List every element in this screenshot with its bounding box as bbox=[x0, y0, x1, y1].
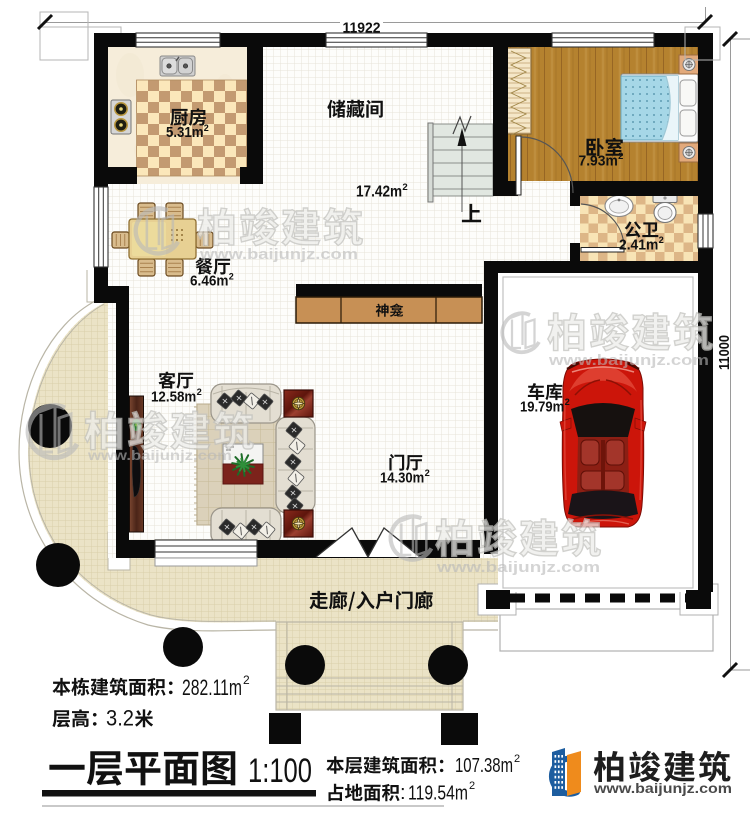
svg-text:11922: 11922 bbox=[343, 20, 381, 37]
svg-text:2: 2 bbox=[402, 182, 407, 193]
svg-text:6.46m: 6.46m bbox=[190, 274, 229, 290]
svg-text:www.baijunjz.com: www.baijunjz.com bbox=[436, 560, 600, 576]
svg-text:282.11m: 282.11m bbox=[182, 675, 242, 700]
svg-text:11000: 11000 bbox=[716, 335, 733, 370]
svg-text:12.58m: 12.58m bbox=[151, 389, 196, 406]
svg-text:14.30m: 14.30m bbox=[380, 470, 424, 487]
svg-text:107.38m: 107.38m bbox=[455, 755, 513, 777]
svg-text:17.42m: 17.42m bbox=[356, 184, 402, 201]
svg-text:2: 2 bbox=[659, 235, 664, 245]
svg-text:www.baijunjz.com: www.baijunjz.com bbox=[87, 448, 232, 463]
svg-text:2: 2 bbox=[197, 387, 202, 397]
svg-text:2: 2 bbox=[514, 753, 520, 765]
svg-text:119.54m: 119.54m bbox=[408, 783, 468, 805]
svg-text:2: 2 bbox=[565, 397, 570, 407]
svg-text:2: 2 bbox=[229, 271, 234, 281]
svg-text:www.baijunjz.com: www.baijunjz.com bbox=[199, 246, 358, 263]
svg-text:3.2: 3.2 bbox=[106, 706, 134, 731]
svg-text:2: 2 bbox=[425, 468, 430, 478]
svg-text::: : bbox=[400, 782, 406, 804]
svg-text:19.79m: 19.79m bbox=[520, 399, 564, 416]
svg-text:2: 2 bbox=[618, 151, 623, 161]
svg-text:2.41m: 2.41m bbox=[619, 237, 658, 254]
svg-text:2: 2 bbox=[204, 123, 209, 133]
svg-text:2: 2 bbox=[469, 780, 475, 792]
svg-text:7.93m: 7.93m bbox=[579, 153, 618, 170]
svg-text:1:100: 1:100 bbox=[248, 752, 312, 790]
svg-text:5.31m: 5.31m bbox=[166, 125, 204, 141]
svg-text:www.baijunjz.com: www.baijunjz.com bbox=[593, 781, 732, 796]
svg-text:www.baijunjz.com: www.baijunjz.com bbox=[548, 352, 709, 369]
svg-text:2: 2 bbox=[243, 673, 250, 687]
